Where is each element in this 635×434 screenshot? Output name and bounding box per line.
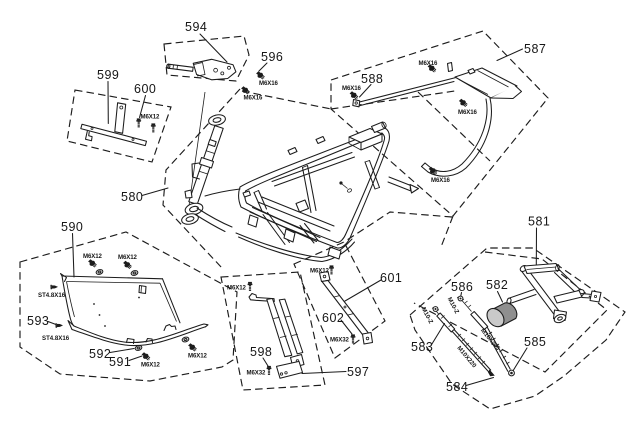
svg-text:M6X12: M6X12 xyxy=(310,268,330,275)
svg-text:592: 592 xyxy=(89,347,111,361)
svg-text:585: 585 xyxy=(524,335,546,349)
svg-text:582: 582 xyxy=(486,278,508,292)
svg-text:ST4.8X16: ST4.8X16 xyxy=(42,335,70,342)
svg-text:M6X12: M6X12 xyxy=(141,114,161,121)
svg-text:M6X12: M6X12 xyxy=(227,285,247,292)
svg-text:M6X12: M6X12 xyxy=(83,253,103,260)
svg-text:586: 586 xyxy=(451,280,473,294)
svg-text:M6X12: M6X12 xyxy=(118,254,138,261)
svg-text:587: 587 xyxy=(524,42,546,56)
svg-text:583: 583 xyxy=(411,340,433,354)
svg-text:M6X16: M6X16 xyxy=(458,109,478,116)
svg-text:M6X16: M6X16 xyxy=(259,80,279,87)
svg-text:599: 599 xyxy=(97,68,119,82)
svg-text:594: 594 xyxy=(185,20,207,34)
svg-text:M6X32: M6X32 xyxy=(330,337,350,344)
svg-text:M6X16: M6X16 xyxy=(431,177,451,184)
svg-text:M6X16: M6X16 xyxy=(342,85,362,92)
svg-text:580: 580 xyxy=(121,190,143,204)
svg-text:M6X12: M6X12 xyxy=(141,362,161,369)
svg-text:593: 593 xyxy=(27,314,49,328)
svg-text:M6X32: M6X32 xyxy=(247,370,267,377)
svg-text:601: 601 xyxy=(380,271,402,285)
svg-text:M6X16: M6X16 xyxy=(244,95,264,102)
svg-text:588: 588 xyxy=(361,72,383,86)
svg-text:591: 591 xyxy=(109,355,131,369)
svg-text:590: 590 xyxy=(61,220,83,234)
svg-text:584: 584 xyxy=(446,380,468,394)
svg-text:598: 598 xyxy=(250,345,272,359)
svg-text:M6X12: M6X12 xyxy=(188,353,208,360)
svg-text:600: 600 xyxy=(134,82,156,96)
svg-text:597: 597 xyxy=(347,365,369,379)
svg-text:602: 602 xyxy=(322,311,344,325)
svg-text:ST4.8X16: ST4.8X16 xyxy=(38,292,66,299)
svg-text:581: 581 xyxy=(528,215,550,229)
svg-text:596: 596 xyxy=(261,50,283,64)
